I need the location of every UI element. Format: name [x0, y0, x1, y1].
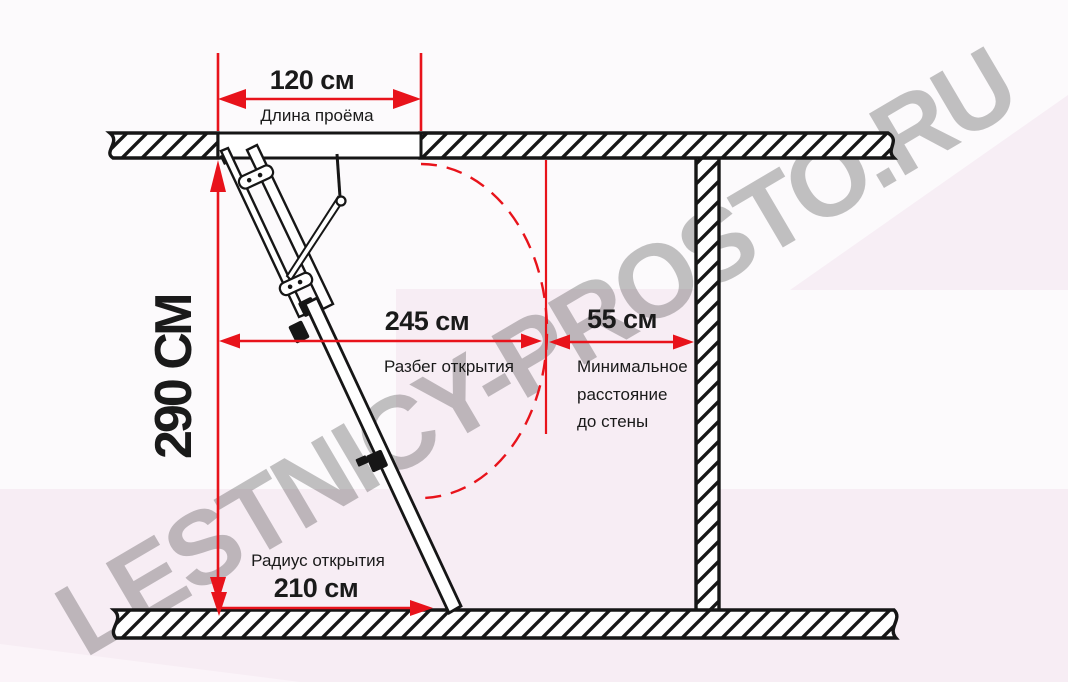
- label-opening-run-value: 245 см: [385, 306, 470, 336]
- label-opening-run-caption: Разбег открытия: [384, 357, 514, 376]
- attic-ladder-dimension-diagram: LESTNICY-PROSTO.RU: [0, 0, 1068, 682]
- arrow-290-up: [210, 160, 226, 192]
- arrow-245-left: [219, 334, 240, 349]
- arrow-120-left: [218, 89, 246, 109]
- ceiling-slab-right: [420, 133, 894, 158]
- label-wall-distance-caption-2: расстояние: [577, 385, 668, 404]
- label-opening-length-caption: Длина проёма: [260, 106, 374, 125]
- pivot-rod: [337, 154, 340, 197]
- arrow-120-right: [393, 89, 421, 109]
- floor-slab: [113, 610, 896, 638]
- label-opening-length-value: 120 см: [270, 65, 355, 95]
- label-ceiling-height-value: 290 СМ: [145, 296, 203, 459]
- ceiling-slab-left: [110, 133, 218, 158]
- diagram-canvas: LESTNICY-PROSTO.RU: [0, 0, 1068, 682]
- label-opening-radius-caption: Радиус открытия: [251, 551, 385, 570]
- label-opening-radius-value: 210 см: [274, 573, 359, 603]
- label-wall-distance-caption-3: до стены: [577, 412, 648, 431]
- label-wall-distance-caption-1: Минимальное: [577, 357, 688, 376]
- strut-joint: [337, 197, 346, 206]
- wall-section: [696, 157, 719, 613]
- label-wall-distance-value: 55 см: [587, 304, 657, 334]
